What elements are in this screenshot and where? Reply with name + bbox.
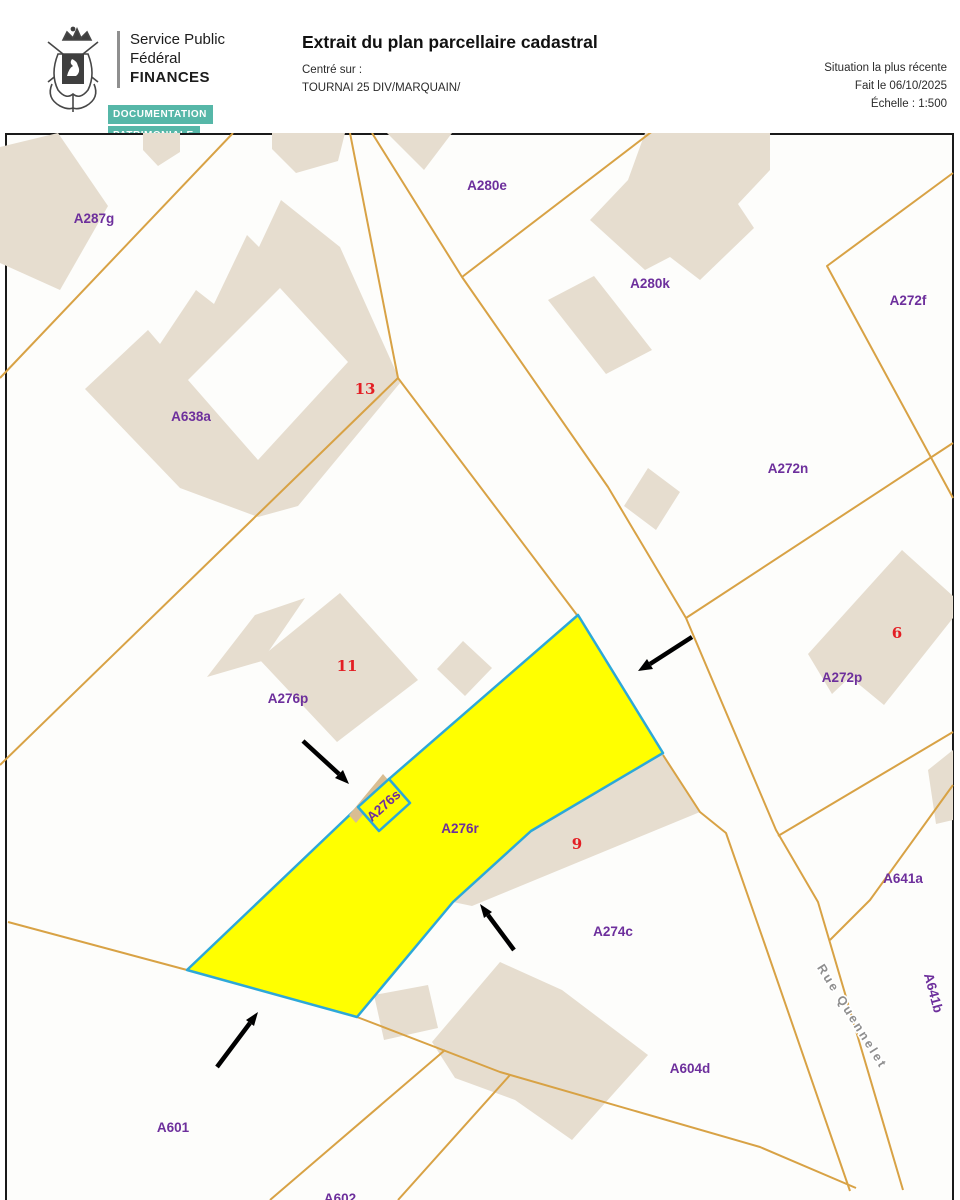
parcel-label-a601: A601 bbox=[157, 1120, 190, 1135]
parcel-label-a641a: A641a bbox=[883, 871, 923, 886]
cadastral-map: A287g A638a A280e A280k A272f A272n A272… bbox=[0, 133, 960, 1200]
centered-on-value: TOURNAI 25 DIV/MARQUAIN/ bbox=[302, 79, 460, 97]
parcel-label-a272p: A272p bbox=[822, 670, 863, 685]
centered-on-label: Centré sur : bbox=[302, 61, 460, 79]
header: Service Public Fédéral FINANCES DOCUMENT… bbox=[0, 0, 960, 133]
parcel-label-a280e: A280e bbox=[467, 178, 507, 193]
parcel-label-a272f: A272f bbox=[890, 293, 927, 308]
parcel-label-a287g: A287g bbox=[74, 211, 115, 226]
parcel-label-a274c: A274c bbox=[593, 924, 633, 939]
house-number-9: 9 bbox=[572, 835, 582, 853]
logo-divider bbox=[117, 31, 120, 88]
org-name: Service Public Fédéral FINANCES bbox=[130, 30, 225, 87]
house-number-11: 11 bbox=[337, 657, 358, 675]
centered-on-block: Centré sur : TOURNAI 25 DIV/MARQUAIN/ bbox=[302, 61, 460, 97]
parcel-label-a604d: A604d bbox=[670, 1061, 711, 1076]
org-line2: Fédéral bbox=[130, 49, 225, 68]
parcel-label-a280k: A280k bbox=[630, 276, 670, 291]
org-line1: Service Public bbox=[130, 30, 225, 49]
badge-documentation: DOCUMENTATION bbox=[108, 105, 213, 124]
house-number-13: 13 bbox=[355, 380, 376, 398]
org-line3: FINANCES bbox=[130, 68, 225, 87]
belgian-coat-of-arms-icon bbox=[36, 24, 110, 116]
scale-text: Échelle : 1:500 bbox=[824, 95, 947, 113]
parcel-label-a272n: A272n bbox=[768, 461, 809, 476]
page-title: Extrait du plan parcellaire cadastral bbox=[302, 32, 598, 53]
parcel-label-a276r: A276r bbox=[441, 821, 479, 836]
date-text: Fait le 06/10/2025 bbox=[824, 77, 947, 95]
house-number-6: 6 bbox=[892, 624, 902, 642]
parcel-label-a638a: A638a bbox=[171, 409, 211, 424]
parcel-label-a602: A602 bbox=[324, 1191, 356, 1200]
situation-text: Situation la plus récente bbox=[824, 59, 947, 77]
map-meta-block: Situation la plus récente Fait le 06/10/… bbox=[824, 59, 947, 113]
parcel-label-a276p: A276p bbox=[268, 691, 309, 706]
